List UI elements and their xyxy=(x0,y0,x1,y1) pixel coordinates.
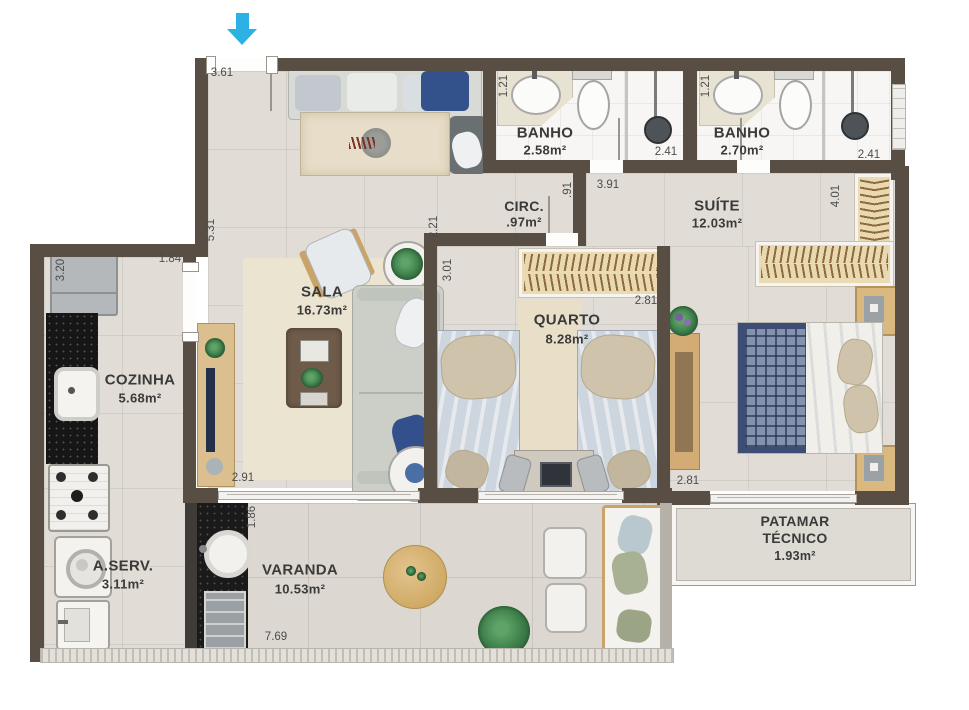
rack-decor xyxy=(206,458,223,475)
aserv-label: A.SERV. xyxy=(93,558,153,575)
shower-divider xyxy=(625,64,628,161)
circ-label: CIRC. xyxy=(504,198,544,214)
varanda-label: VARANDA xyxy=(262,562,338,579)
coffee-table xyxy=(286,328,342,408)
dim-banho2-width: 1.21 xyxy=(700,75,712,97)
cozinha-door-jamb-bottom xyxy=(182,332,199,342)
quarto-label: QUARTO xyxy=(534,312,601,329)
gourmet-faucet xyxy=(199,545,207,553)
burner xyxy=(88,510,98,520)
dim-cozinha-left: 3.20 xyxy=(55,259,67,281)
dim-banho1-length: 2.41 xyxy=(655,146,677,158)
balcony-railing xyxy=(40,648,674,663)
banho2-label: BANHO xyxy=(714,125,771,142)
wall-quarto-left xyxy=(424,233,437,503)
wall-between-banhos xyxy=(683,58,697,173)
lounge-chair xyxy=(448,116,488,174)
suite-pillow xyxy=(834,336,875,387)
daybed-pillow-sage xyxy=(610,549,651,596)
bench-cushion xyxy=(295,75,341,111)
dim-varanda-width: 7.69 xyxy=(265,631,287,643)
round-dining-table xyxy=(383,545,447,609)
coffee-table-tray xyxy=(300,392,328,406)
fridge-divider xyxy=(52,292,116,294)
wall-quarto-top-a xyxy=(424,233,546,246)
suite-wardrobe-horizontal xyxy=(756,242,893,286)
stove-center xyxy=(71,490,83,502)
shower-arm xyxy=(851,64,854,116)
purple-flowers xyxy=(675,313,683,321)
washer-drum xyxy=(76,559,88,571)
laptop xyxy=(540,462,572,487)
patamar-area: 1.93m² xyxy=(774,549,815,563)
entrance-door-jamb-right xyxy=(266,56,278,74)
bench-cushion xyxy=(347,73,397,111)
kitchen-counter xyxy=(46,313,98,464)
cozinha-door-jamb-top xyxy=(182,262,199,272)
quarto-door-gap xyxy=(546,233,578,246)
sala-label: SALA xyxy=(301,284,343,301)
tv xyxy=(206,368,215,452)
nightstand-dot xyxy=(870,304,878,312)
kitchen-sink xyxy=(54,367,100,421)
banho2-area: 2.70m² xyxy=(721,143,764,158)
gourmet-sink xyxy=(204,530,252,578)
wall-varanda-right xyxy=(660,503,672,648)
dim-sala-left: 5.31 xyxy=(205,219,217,241)
dim-suite-depth: 4.01 xyxy=(830,185,842,207)
wall-suite-right xyxy=(895,166,909,505)
dim-sala-right: 2.21 xyxy=(428,216,440,238)
coffee-table-books xyxy=(300,340,329,362)
toilet-bowl xyxy=(779,80,812,130)
burner xyxy=(88,472,98,482)
wall-bottom-b xyxy=(418,488,478,503)
dim-suite-bed-width: 2.81 xyxy=(677,475,699,487)
gourmet-counter xyxy=(197,503,248,653)
suite-upper-floor xyxy=(586,173,895,246)
patamar-label-line2: TÉCNICO xyxy=(762,530,827,546)
quarto-area: 8.28m² xyxy=(546,332,589,347)
wall-outer-left xyxy=(30,244,44,662)
wall-top-main xyxy=(275,58,905,71)
wall-banho-bottom-b xyxy=(623,160,737,173)
burner xyxy=(56,472,66,482)
kitchen-faucet xyxy=(68,387,75,394)
entrance-door-leaf xyxy=(270,71,272,111)
shower-head xyxy=(841,112,869,140)
nightstand-dot xyxy=(870,463,878,471)
shower-arm xyxy=(654,64,657,120)
cozinha-area: 5.68m² xyxy=(119,391,162,406)
coffee-table-plant xyxy=(301,368,323,388)
pouf xyxy=(543,527,587,579)
dim-sala-top: 3.61 xyxy=(211,67,233,79)
suite-pillow xyxy=(841,383,881,435)
quarto-door-leaf xyxy=(548,196,550,233)
banho1-door-leaf xyxy=(618,118,620,160)
bed-pillow xyxy=(439,332,518,401)
cozinha-label: COZINHA xyxy=(105,372,175,389)
suite-area: 12.03m² xyxy=(692,216,743,231)
dresser-top-decor xyxy=(675,352,693,452)
laundry-tank xyxy=(56,600,110,650)
dim-suite-width: 3.91 xyxy=(597,179,619,191)
sala-area: 16.73m² xyxy=(297,303,348,318)
table-decor xyxy=(417,572,426,581)
dim-varanda-depth: 1.86 xyxy=(246,506,258,528)
aserv-area: 3.11m² xyxy=(102,577,144,592)
suite-sliding-door xyxy=(710,494,857,503)
entrance-arrow xyxy=(227,13,257,45)
lounge-chair-pillow xyxy=(449,129,485,171)
wall-suite-bottom-b xyxy=(855,491,909,505)
table-decor xyxy=(406,566,416,576)
suite-dresser xyxy=(669,333,700,470)
dim-banho1-width: 1.21 xyxy=(498,75,510,97)
bench-cushion-navy xyxy=(421,71,469,111)
plaid-blanket xyxy=(738,323,806,453)
patamar-label-line1: PATAMAR xyxy=(761,513,830,529)
cozinha-door-gap xyxy=(183,268,196,338)
wall-banho1-left xyxy=(483,58,496,173)
dim-circ-width: .91 xyxy=(562,182,574,198)
purple-flowers xyxy=(684,319,691,326)
daybed-pillow-sage xyxy=(615,608,653,644)
tv-rack xyxy=(197,323,235,487)
toilet-bowl xyxy=(577,80,610,130)
dim-banho2-length: 2.41 xyxy=(858,149,880,161)
dim-quarto-depth: 3.01 xyxy=(442,259,454,281)
bed-pillow xyxy=(579,332,657,401)
tank-basin xyxy=(64,608,90,642)
wall-bottom-a xyxy=(195,488,218,503)
burner xyxy=(56,510,66,520)
tank-faucet xyxy=(58,620,68,624)
washbasin-sink xyxy=(713,75,763,115)
blue-bowl xyxy=(405,463,425,483)
centerpiece-sprigs xyxy=(349,137,375,149)
dim-sala-bottom: 2.91 xyxy=(232,472,254,484)
banho2-window xyxy=(892,84,906,150)
stove xyxy=(48,464,110,532)
wall-banho-bottom-c xyxy=(770,160,905,173)
daybed xyxy=(602,505,664,657)
quarto-wardrobe xyxy=(519,249,663,297)
dim-cozinha-top: 1.84 xyxy=(159,253,181,265)
rack-plant xyxy=(205,338,225,358)
pouf xyxy=(545,583,587,633)
suite-plant xyxy=(668,306,698,336)
banho1-area: 2.58m² xyxy=(524,143,567,158)
shower-head xyxy=(644,116,672,144)
washbasin-sink xyxy=(511,75,561,115)
double-bed xyxy=(737,322,883,454)
varanda-area: 10.53m² xyxy=(275,582,326,597)
wall-aserv-varanda xyxy=(185,503,197,653)
suite-label: SUÍTE xyxy=(694,198,740,215)
banho1-door-gap xyxy=(590,160,623,173)
floor-plan: SALA 16.73m² COZINHA 5.68m² A.SERV. 3.11… xyxy=(0,0,969,710)
banho1-label: BANHO xyxy=(517,125,574,142)
sala-sliding-door xyxy=(218,491,420,500)
quarto-sliding-door xyxy=(478,491,624,500)
circ-area: .97m² xyxy=(506,215,541,230)
banho2-door-gap xyxy=(737,160,770,173)
wall-quarto-right xyxy=(657,246,670,503)
wine-fridge xyxy=(204,591,246,651)
dim-quarto-width: 2.81 xyxy=(635,295,657,307)
dining-table xyxy=(300,112,450,176)
wall-cozinha-sala-b xyxy=(183,338,196,503)
wall-quarto-top-b xyxy=(578,233,586,246)
sofa-seam xyxy=(359,392,423,394)
potted-plant xyxy=(391,248,423,280)
shower-divider xyxy=(822,64,825,161)
